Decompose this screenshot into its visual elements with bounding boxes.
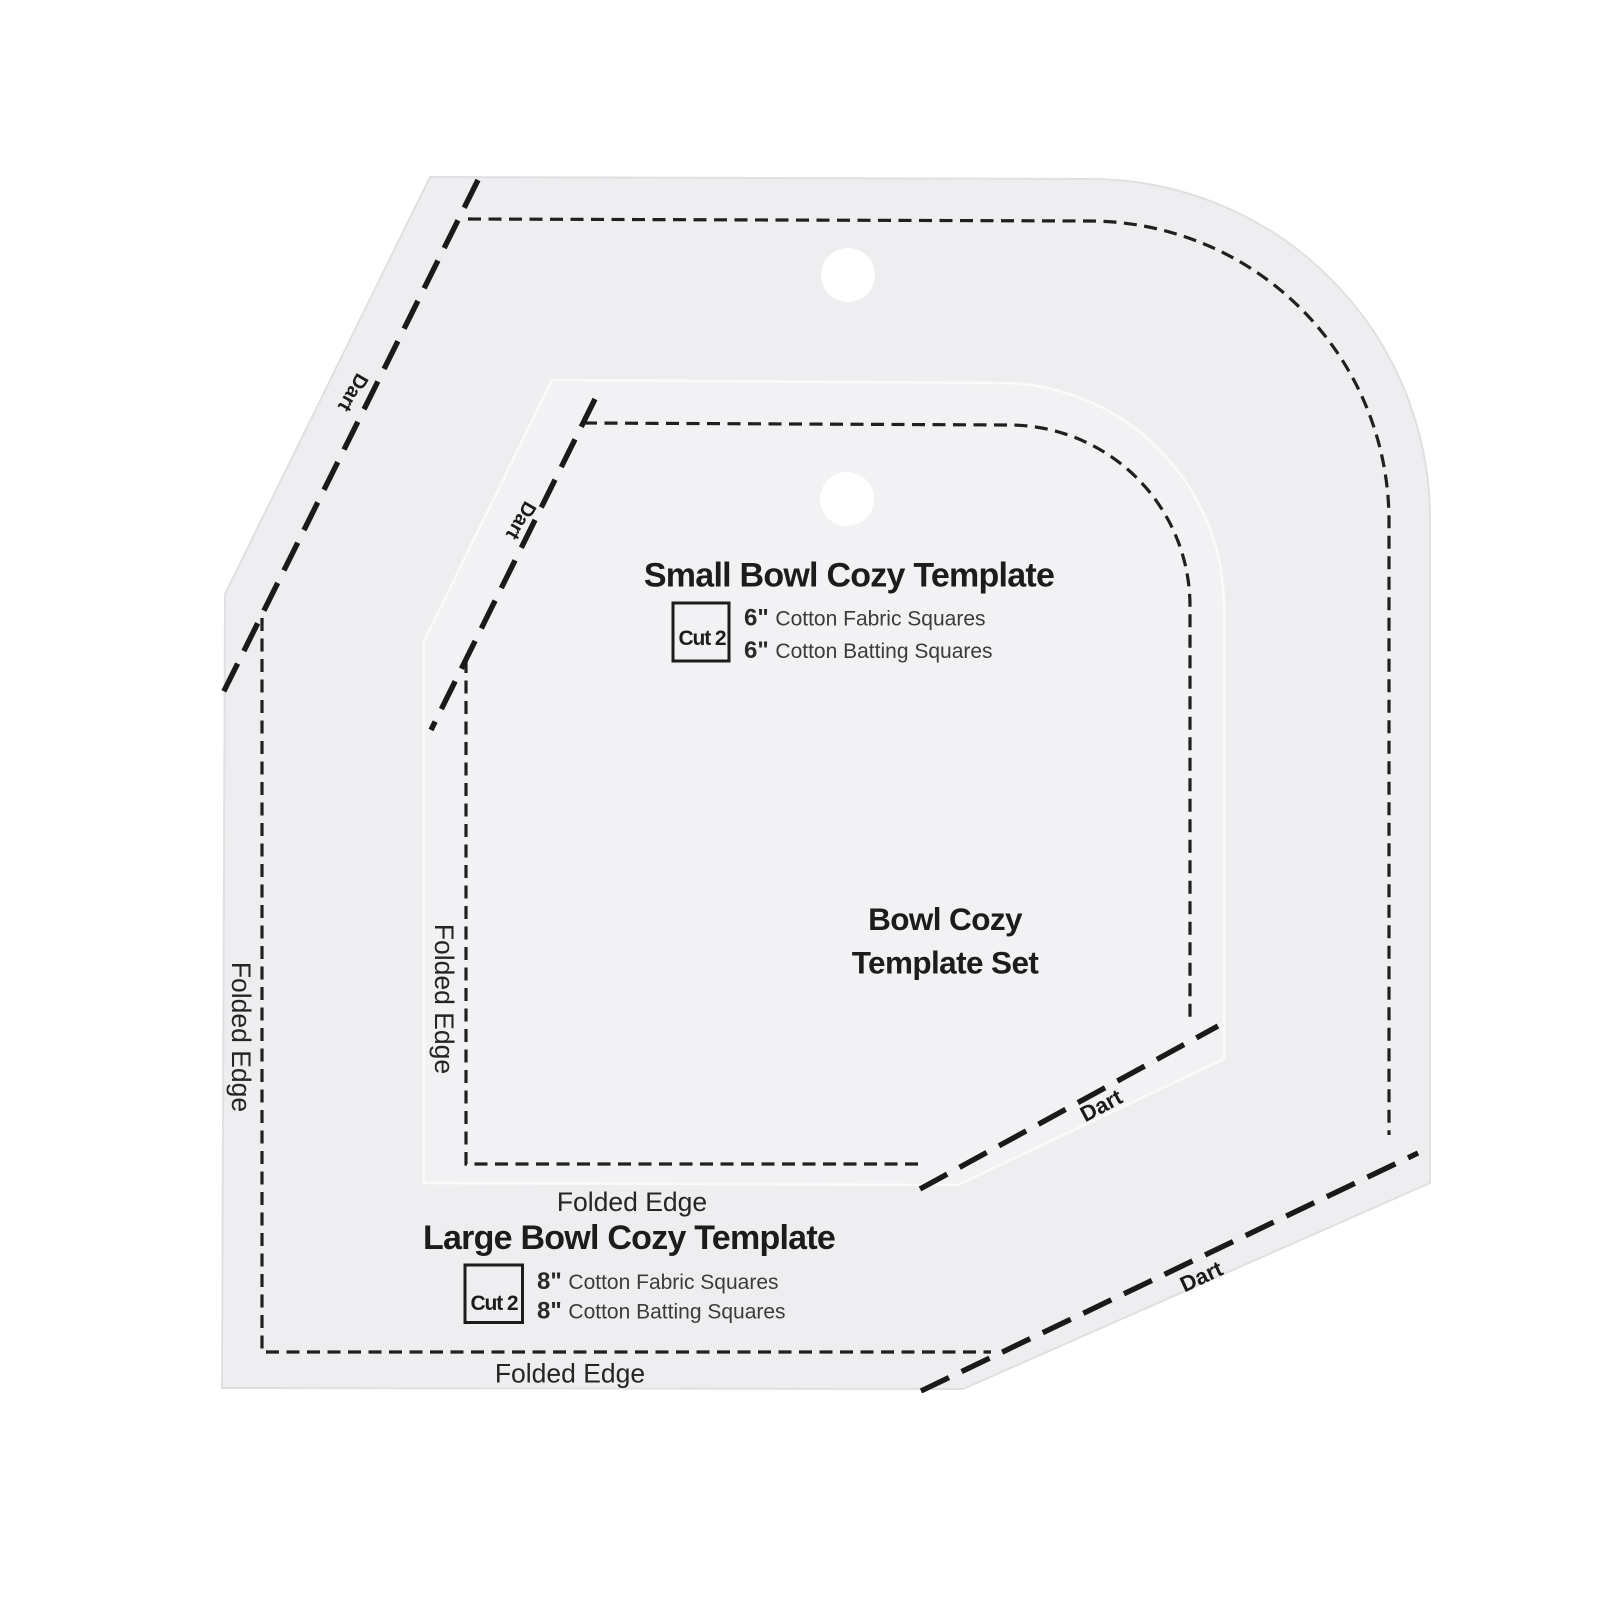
svg-text:8" Cotton Batting Squares: 8" Cotton Batting Squares [537,1298,786,1325]
svg-text:Folded Edge: Folded Edge [557,1187,707,1217]
svg-text:Folded Edge: Folded Edge [429,924,459,1074]
svg-text:Small Bowl Cozy Template: Small Bowl Cozy Template [644,557,1054,595]
svg-text:6" Cotton Fabric Squares: 6" Cotton Fabric Squares [744,605,986,632]
svg-text:Bowl Cozy: Bowl Cozy [868,901,1023,937]
svg-text:Template Set: Template Set [852,945,1040,981]
svg-text:Large Bowl Cozy Template: Large Bowl Cozy Template [423,1219,835,1257]
svg-text:6" Cotton Batting Squares: 6" Cotton Batting Squares [744,637,993,664]
svg-text:Folded Edge: Folded Edge [495,1359,645,1389]
svg-text:8" Cotton Fabric Squares: 8" Cotton Fabric Squares [537,1268,779,1295]
svg-text:Folded Edge: Folded Edge [226,962,256,1112]
svg-text:Cut 2: Cut 2 [470,1292,517,1315]
svg-text:Cut 2: Cut 2 [678,627,725,650]
